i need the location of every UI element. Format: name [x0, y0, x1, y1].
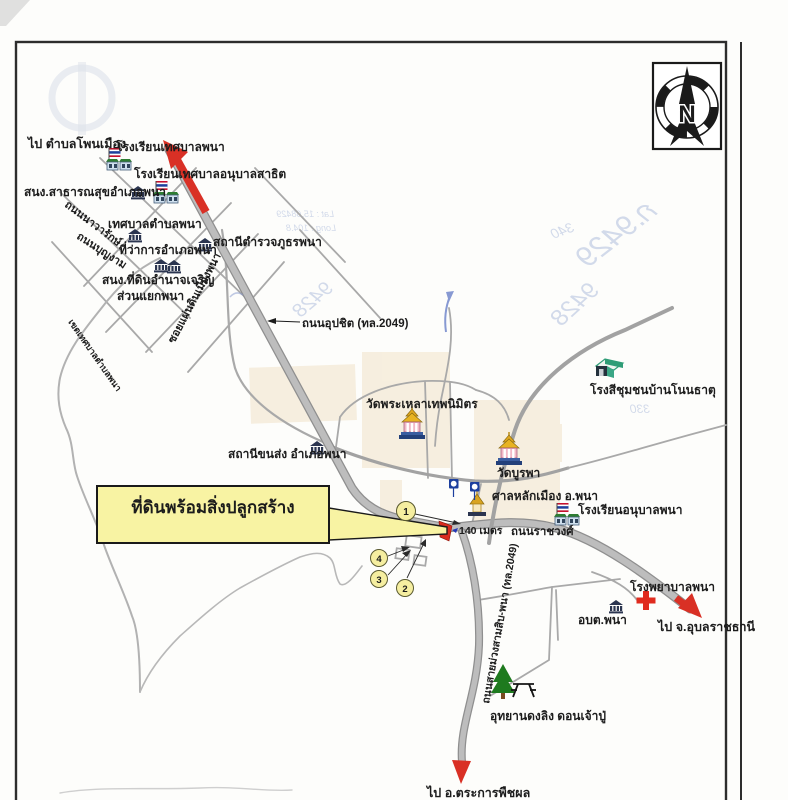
direction-label-east: ไป จ.อุบลราชธานี	[656, 619, 755, 635]
scanned-map-page: ก.9429 9428 9428 340 330 Lat : 15.68429 …	[0, 0, 788, 800]
label-school-thetsaban: โรงเรียนเทศบาลพนา	[115, 139, 225, 154]
label-hospital: โรงพยาบาลพนา	[629, 579, 715, 594]
label-phana-fork: ส่วนแยกพนา	[117, 289, 184, 303]
handwriting-ghost: 330	[630, 402, 650, 416]
label-public-health: สนง.สาธารณสุขอำเภอพนา	[24, 185, 166, 200]
marker-number: 2	[402, 584, 407, 595]
map-canvas: ก.9429 9428 9428 340 330 Lat : 15.68429 …	[0, 0, 788, 800]
callout-label: ที่ดินพร้อมสิ่งปลูกสร้าง	[131, 495, 294, 519]
marker-number: 4	[376, 554, 382, 565]
label-police-station: สถานีตำรวจภูธรพนา	[213, 235, 322, 250]
label-wat-phra-lao: วัดพระเหลาเทพนิมิตร	[366, 397, 478, 411]
label-school-anuban-sathit: โรงเรียนเทศบาลอนุบาลสาธิต	[133, 166, 286, 182]
marker-3: 3	[371, 571, 388, 588]
marker-2: 2	[397, 580, 414, 597]
direction-label-northwest: ไป ตำบลโพนเมือง	[26, 136, 126, 151]
label-road-uppachit: ถนนอุปชิต (ทล.2049)	[302, 317, 409, 331]
label-city-pillar-shrine: ศาลหลักเมือง อ.พนา	[492, 489, 598, 503]
label-wat-burapha: วัดบูรพา	[497, 466, 540, 481]
marker-number: 3	[376, 575, 381, 586]
label-district-office: ที่ว่าการอำเภอพนา	[119, 241, 217, 257]
label-monkey-park: อุทยานดงลิง ดอนเจ้าปู่	[490, 709, 606, 724]
label-rice-mill: โรงสีชุมชนบ้านโนนธาตุ	[589, 382, 716, 398]
label-bus-terminal: สถานีขนส่ง อำเภอพนา	[228, 447, 346, 461]
label-sao-phana: อบต.พนา	[578, 613, 627, 627]
marker-4: 4	[371, 550, 388, 567]
handwriting-ghost: Long : 104.8	[286, 223, 336, 233]
label-municipality: เทศบาลตำบลพนา	[108, 217, 202, 231]
label-road-ratchawong: ถนนราชวงศ์	[511, 524, 574, 538]
marker-1: 1	[397, 502, 416, 521]
compass-letter: N	[678, 101, 695, 128]
compass-rose: N	[653, 63, 721, 149]
label-school-anuban-phana: โรงเรียนอนุบาลพนา	[577, 502, 683, 518]
marker-number: 1	[403, 507, 409, 518]
direction-label-south: ไป อ.ตระการพืชผล	[425, 785, 530, 800]
handwriting-ghost: Lat : 15.68429	[276, 209, 334, 219]
distance-label: 140 เมตร	[459, 525, 503, 537]
